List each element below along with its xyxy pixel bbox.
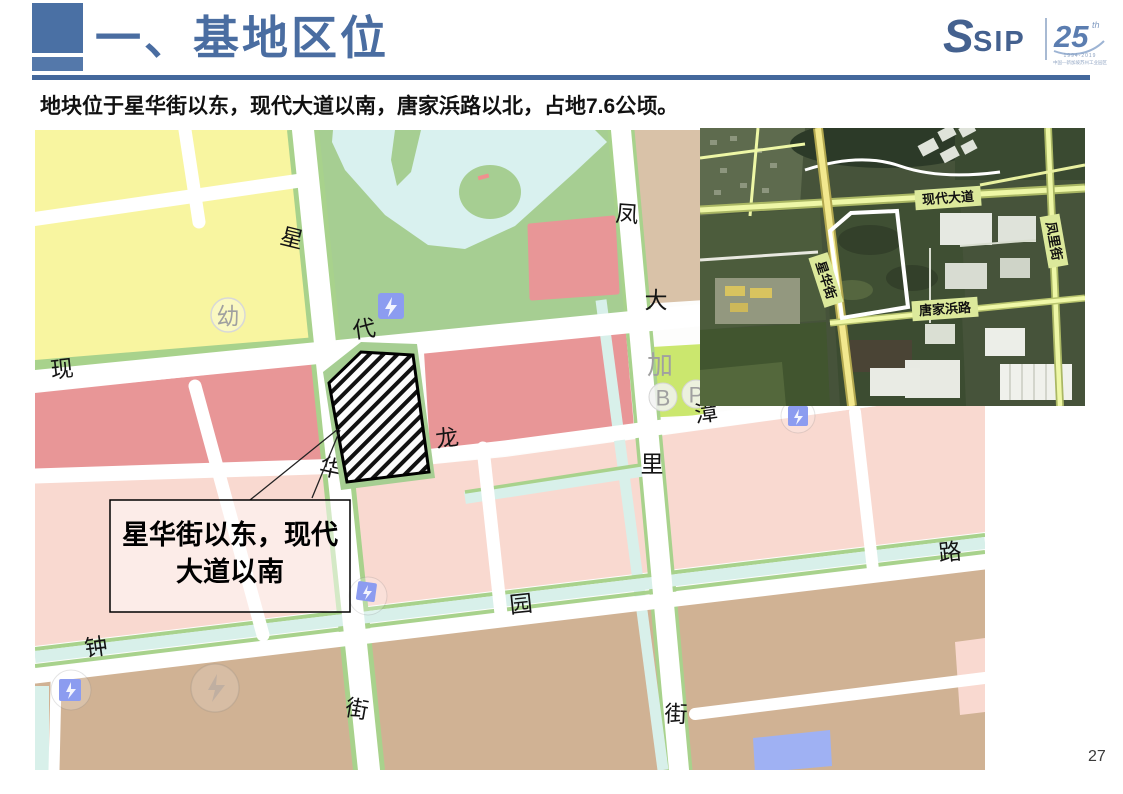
title-decoration-bar [32,57,83,71]
map-street-label: 钟 [83,633,109,662]
title-decoration-square [32,3,83,53]
map-street-label: 里 [641,451,664,477]
satellite-inset: 现代大道凤里街星华街唐家浜路 [700,128,1085,406]
map-street-label: 现 [49,355,75,383]
page-number: 27 [1088,748,1106,766]
site-boundary-hatched [329,352,429,482]
sip-logo: S SIP 25 th 1994-2019 中国—新加坡苏州工业园区 [942,10,1114,68]
sip-logo-swoosh: S [943,10,974,62]
anniversary-25: 25 [1053,19,1089,54]
title-underline [32,75,1090,80]
anniversary-years: 1994-2019 [1064,53,1097,59]
map-poi-label: 加 [647,350,673,380]
map-poi-label: B [656,386,671,411]
callout-line1: 星华街以东，现代 [122,519,338,550]
map-street-label: 街 [664,701,688,728]
map-street-label: 街 [343,694,370,724]
map-street-label: 凤 [615,200,640,228]
callout-line2: 大道以南 [176,556,284,587]
anniversary-caption: 中国—新加坡苏州工业园区 [1053,59,1107,66]
sip-logo-text: SIP [973,26,1026,58]
slide: 一、基地区位 S SIP 25 th 1994-2019 中国—新加坡苏州工业园… [0,0,1123,794]
lake-island [459,165,521,219]
anniversary-th: th [1092,20,1100,30]
map-street-label: 代 [351,315,377,344]
site-callout-box [110,500,350,612]
map-street-label: 园 [508,590,534,618]
page-title: 一、基地区位 [95,2,389,68]
map-street-label: 龙 [434,424,460,453]
map-street-label: 大 [645,287,668,313]
zone-red-park [530,218,617,298]
canal-southwest [35,686,49,770]
map-poi-label: 幼 [217,303,240,329]
location-description: 地块位于星华街以东，现代大道以南，唐家浜路以北，占地7.6公顷。 [40,90,678,120]
map-street-label: 路 [937,538,963,566]
